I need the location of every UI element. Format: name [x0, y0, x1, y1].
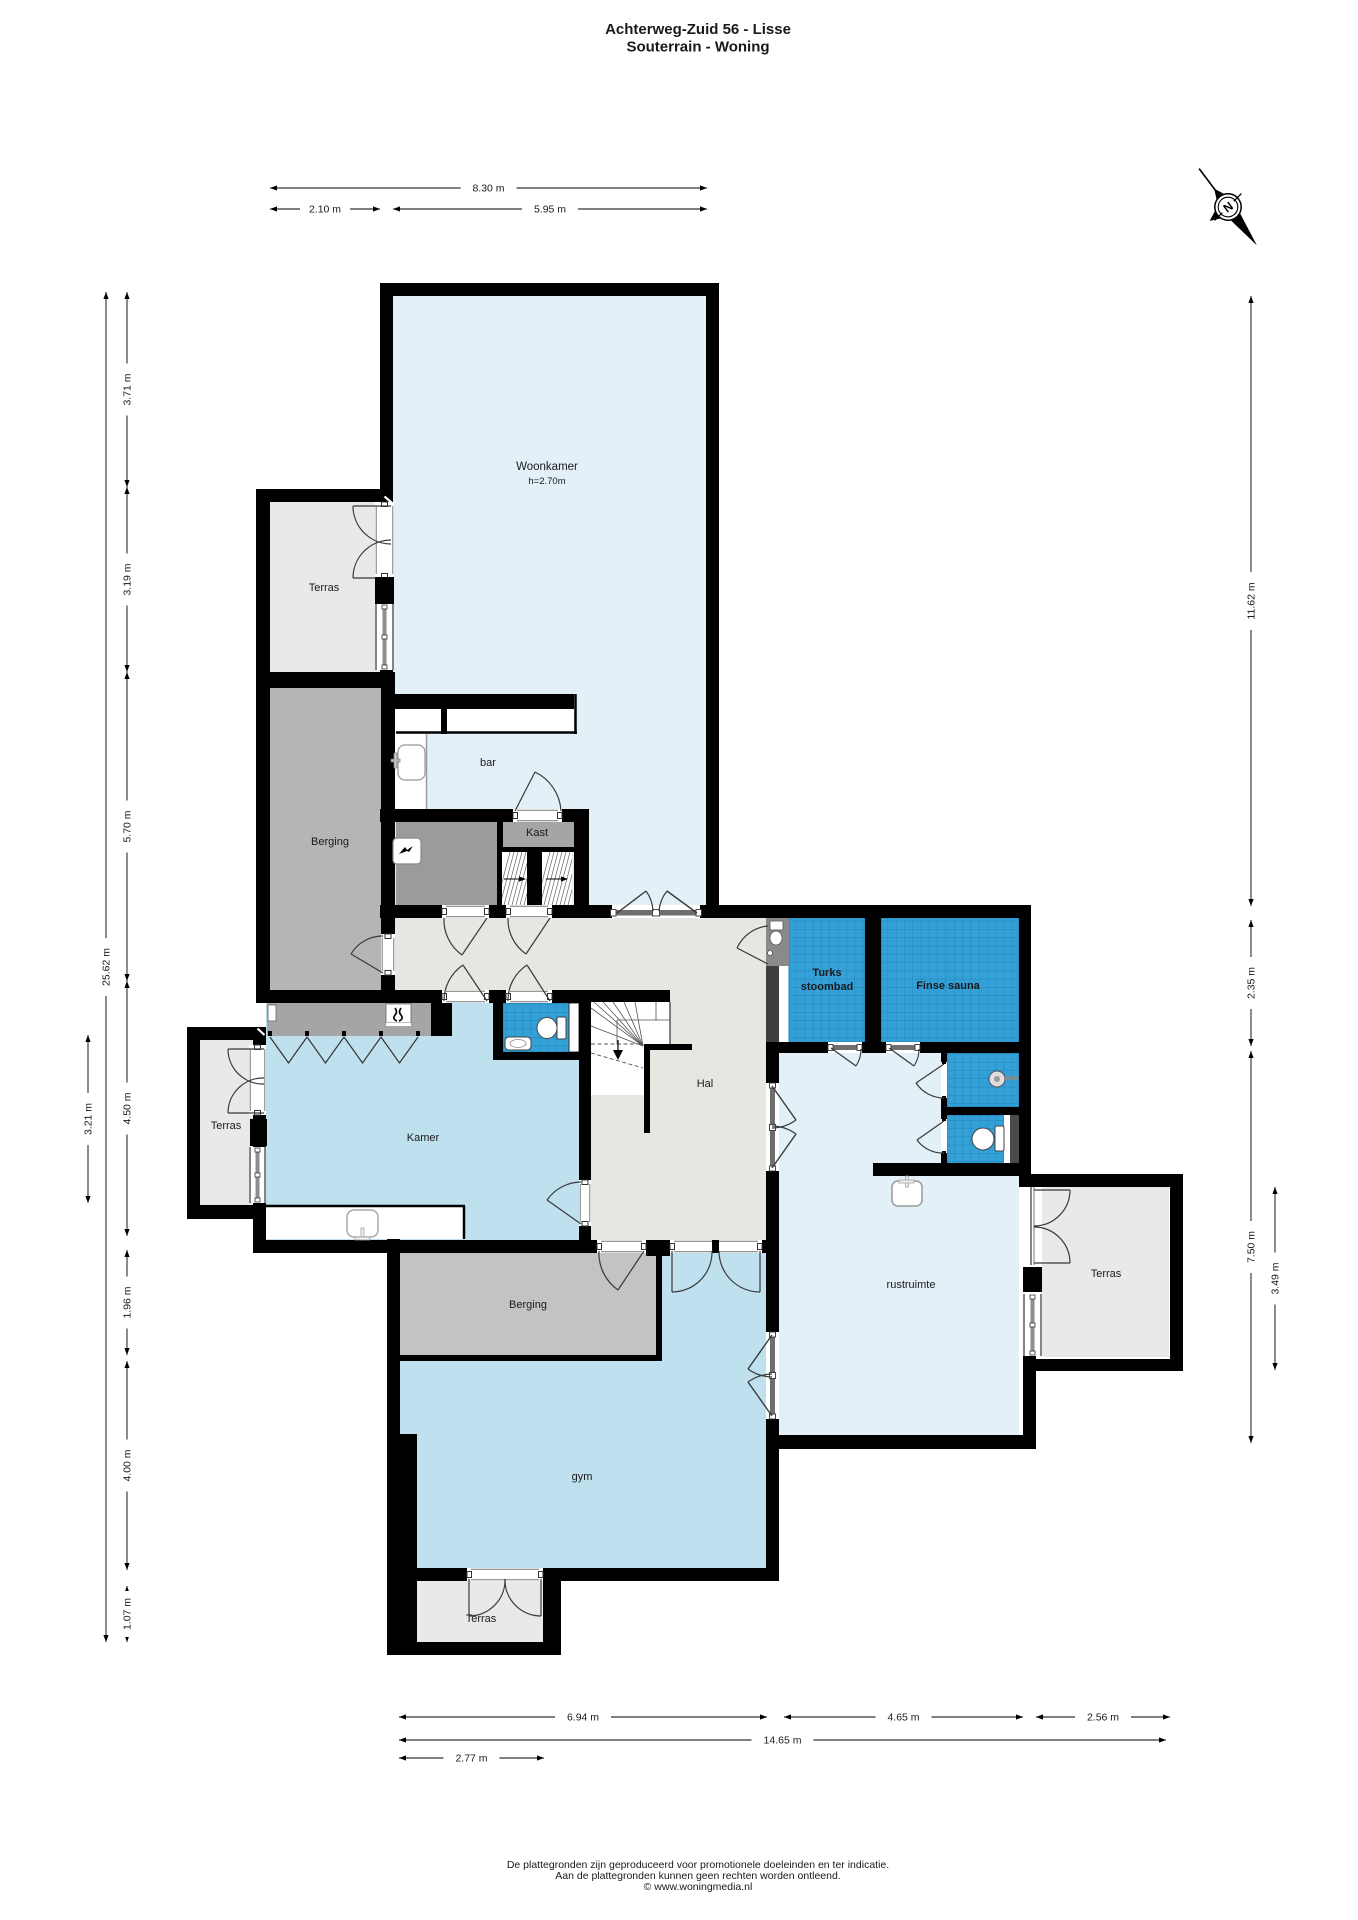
svg-text:8.30 m: 8.30 m — [472, 183, 504, 195]
svg-text:3.19 m: 3.19 m — [122, 563, 134, 595]
svg-text:Terras: Terras — [211, 1120, 242, 1132]
svg-text:Finse sauna: Finse sauna — [916, 980, 980, 992]
svg-text:Achterweg-Zuid 56 - Lisse: Achterweg-Zuid 56 - Lisse — [605, 21, 791, 38]
svg-text:11.62 m: 11.62 m — [1246, 582, 1258, 619]
svg-text:5.70 m: 5.70 m — [122, 810, 134, 842]
svg-text:3.71 m: 3.71 m — [122, 373, 134, 405]
svg-text:25.62 m: 25.62 m — [101, 948, 113, 986]
svg-text:gym: gym — [572, 1471, 593, 1483]
svg-text:Hal: Hal — [697, 1078, 714, 1090]
svg-text:14.65 m: 14.65 m — [764, 1735, 802, 1747]
svg-text:Souterrain - Woning: Souterrain - Woning — [626, 39, 769, 56]
svg-text:stoombad: stoombad — [801, 981, 854, 993]
svg-text:6.94 m: 6.94 m — [567, 1712, 599, 1724]
svg-text:4.65 m: 4.65 m — [887, 1712, 919, 1724]
svg-text:3.49 m: 3.49 m — [1270, 1262, 1282, 1294]
svg-text:rustruimte: rustruimte — [887, 1279, 936, 1291]
svg-text:4.00 m: 4.00 m — [122, 1449, 134, 1481]
svg-text:Berging: Berging — [311, 836, 349, 848]
svg-text:1.96 m: 1.96 m — [122, 1286, 134, 1318]
svg-text:3.21 m: 3.21 m — [83, 1103, 95, 1135]
svg-text:Terras: Terras — [466, 1613, 497, 1625]
svg-text:Terras: Terras — [309, 582, 340, 594]
svg-text:© www.woningmedia.nl: © www.woningmedia.nl — [644, 1881, 753, 1893]
svg-text:Terras: Terras — [1091, 1268, 1122, 1280]
svg-text:Woonkamer: Woonkamer — [516, 461, 578, 473]
svg-text:2.77 m: 2.77 m — [455, 1753, 487, 1765]
svg-text:4.50 m: 4.50 m — [122, 1092, 134, 1124]
svg-text:2.56 m: 2.56 m — [1087, 1712, 1119, 1724]
svg-text:2.10 m: 2.10 m — [309, 204, 341, 216]
svg-text:bar: bar — [480, 757, 496, 769]
svg-text:Kamer: Kamer — [407, 1132, 440, 1144]
svg-text:1.07 m: 1.07 m — [122, 1598, 134, 1630]
svg-text:Kast: Kast — [526, 827, 548, 839]
svg-text:5.95 m: 5.95 m — [534, 204, 566, 216]
svg-text:Turks: Turks — [812, 967, 841, 979]
svg-text:2.35 m: 2.35 m — [1246, 967, 1258, 999]
svg-text:h=2.70m: h=2.70m — [528, 476, 565, 487]
svg-text:Berging: Berging — [509, 1299, 547, 1311]
svg-text:7.50 m: 7.50 m — [1246, 1231, 1258, 1263]
